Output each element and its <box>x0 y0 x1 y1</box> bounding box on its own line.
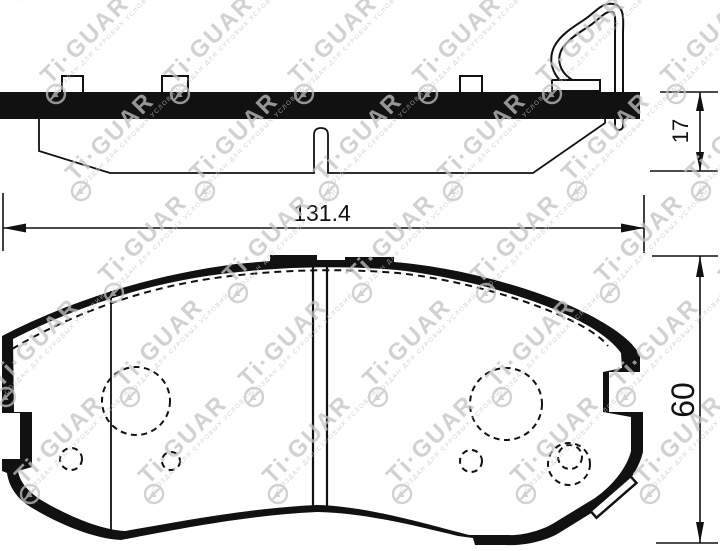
friction-material-profile <box>39 119 605 173</box>
front-view: 60 <box>2 255 718 545</box>
height-dimension-label: 60 <box>665 382 701 418</box>
abutment-tab <box>460 76 482 93</box>
backing-plate <box>0 92 640 119</box>
abutment-tab <box>62 76 83 93</box>
width-dimension: 131.4 <box>3 193 644 253</box>
height-dimension: 60 <box>652 256 718 543</box>
brake-pad-technical-drawing: 17 131.4 <box>0 0 720 551</box>
technical-drawing-page: 17 131.4 <box>0 0 720 551</box>
thickness-dimension-label: 17 <box>668 119 693 143</box>
thickness-dimension: 17 <box>650 92 718 171</box>
abutment-tabs <box>62 76 482 93</box>
abutment-tab <box>162 76 188 93</box>
spring-clip-foot <box>552 80 600 91</box>
width-dimension-label: 131.4 <box>293 200 351 226</box>
side-view: 17 <box>0 8 718 173</box>
